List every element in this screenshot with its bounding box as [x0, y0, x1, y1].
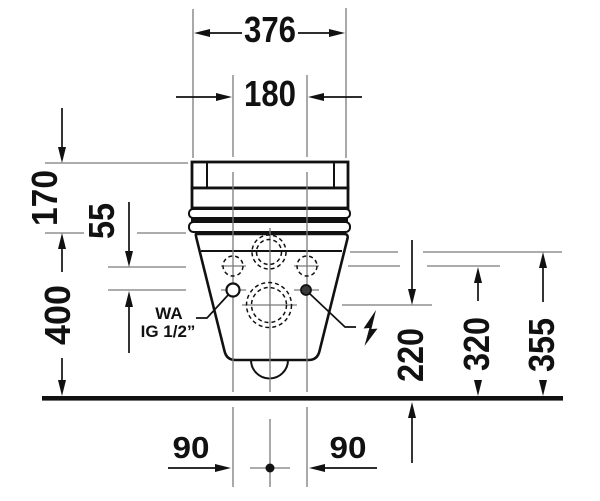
- center-reference-dot: [266, 464, 275, 473]
- dim-hole-spacing-value: 180: [244, 73, 296, 114]
- dim-total-width-value: 376: [244, 9, 296, 50]
- dimension-supply-height: 355: [521, 252, 562, 396]
- dim-right-hole-offset-value: 90: [330, 430, 367, 465]
- water-label-line1: WA: [155, 304, 182, 323]
- lightning-bolt-icon: [364, 310, 378, 346]
- dimension-total-width: 376: [194, 9, 345, 50]
- dimension-outlet-height: 220: [390, 240, 431, 463]
- dimension-rim-height: 400: [37, 249, 78, 396]
- toilet-installation-drawing: 376 180 170 400 55 220: [0, 0, 600, 501]
- cistern-cover: [192, 162, 348, 188]
- dim-left-hole-offset-value: 90: [173, 430, 210, 465]
- seat-lid: [189, 209, 350, 218]
- dim-supply-height-value: 355: [521, 318, 562, 372]
- dimension-hole-spacing: 180: [176, 73, 362, 114]
- dim-rim-height-value: 400: [37, 285, 78, 345]
- dim-cover-height-value: 170: [24, 170, 65, 226]
- drawing-canvas: 376 180 170 400 55 220: [0, 0, 600, 501]
- bowl-outline: [196, 234, 348, 360]
- dimension-cover-height: 170: [24, 108, 66, 249]
- dimension-left-hole-offset: 90: [168, 430, 231, 472]
- dim-hole-offset-value: 55: [81, 203, 122, 239]
- dim-fixing-height-value: 320: [456, 317, 497, 371]
- water-label-line2: IG 1/2”: [141, 322, 196, 341]
- dimension-right-hole-offset: 90: [266, 430, 378, 473]
- dim-outlet-height-value: 220: [390, 328, 431, 382]
- dimension-hole-offset: 55: [81, 202, 133, 353]
- floor-line: [42, 396, 563, 401]
- dimension-fixing-height: 320: [456, 267, 497, 396]
- cistern-band: [192, 188, 348, 208]
